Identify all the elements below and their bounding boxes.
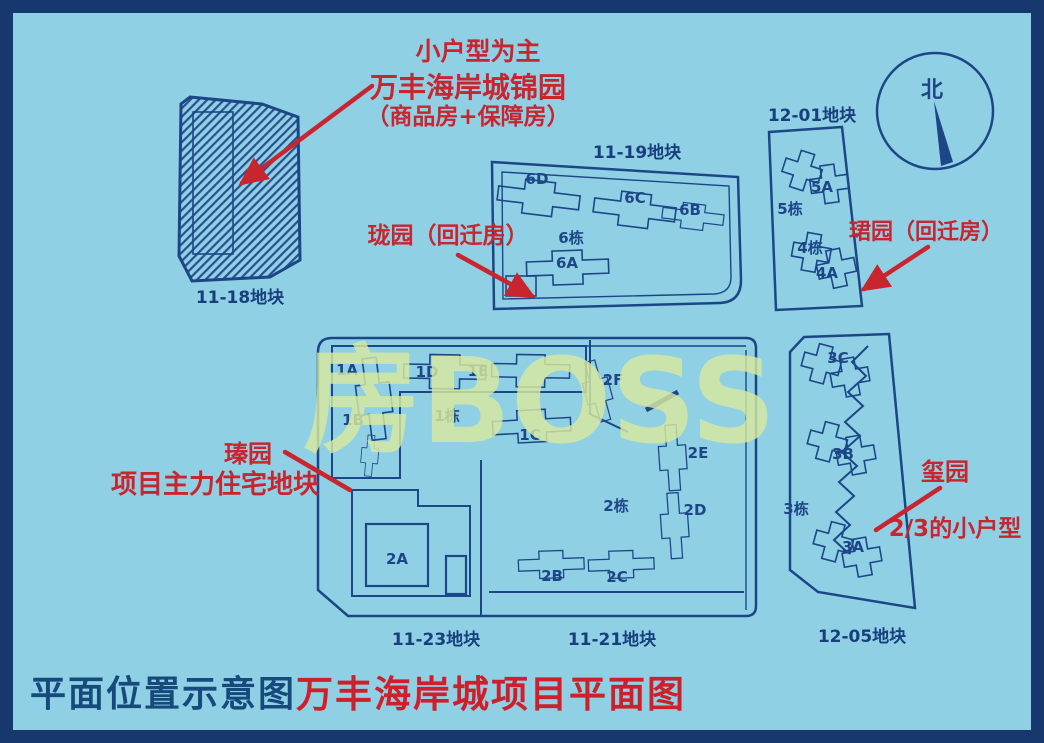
plot-11-21-label: 11-21地块 [568, 629, 657, 650]
watermark-text: 房BOSS [303, 332, 776, 470]
annotation-xiyuan-line1: 玺园 [921, 458, 969, 486]
building-2b-label: 2B [541, 567, 563, 585]
building-6c-label: 6C [624, 189, 645, 207]
building-6d-label: 6D [526, 170, 549, 188]
plot-11-19-label: 11-19地块 [593, 142, 682, 163]
annotation-xiyuan-line2: 2/3的小户型 [889, 515, 1021, 542]
annotation-top-line1: 小户型为主 [415, 37, 540, 66]
building-2dong-label: 2栋 [603, 497, 628, 515]
building-4dong-label: 4栋 [797, 239, 822, 257]
building-6b-label: 6B [679, 201, 701, 219]
site-plan-canvas: 11-18地块 11-19地块 6D 6C 6B 6栋 6A 12-01地块 5… [0, 0, 1044, 743]
footer-left-title: 平面位置示意图 [30, 674, 296, 715]
building-6dong-label: 6栋 [558, 229, 583, 247]
annotation-junyuan: 珺园（回迁房） [849, 219, 1003, 245]
building-3a-label: 3A [842, 538, 864, 556]
building-2c-label: 2C [606, 568, 627, 586]
plot-11-23-label: 11-23地块 [392, 629, 481, 650]
building-2a-label: 2A [386, 550, 408, 568]
building-5dong-label: 5栋 [777, 200, 802, 218]
building-6a-label: 6A [556, 254, 578, 272]
annotation-zhenyuan-line2: 项目主力住宅地块 [111, 469, 319, 500]
footer: 平面位置示意图 万丰海岸城项目平面图 [30, 673, 686, 716]
building-2d-label: 2D [684, 501, 707, 519]
plot-11-18-label: 11-18地块 [196, 287, 285, 308]
annotation-top-line3: （商品房+保障房） [366, 103, 569, 130]
building-4a-label: 4A [816, 264, 838, 282]
plot-12-05-label: 12-05地块 [818, 626, 907, 647]
footer-right-title: 万丰海岸城项目平面图 [296, 673, 686, 716]
plot-12-01-label: 12-01地块 [768, 105, 857, 126]
annotation-longyuan: 珑园（回迁房） [368, 222, 529, 249]
building-5a-label: 5A [811, 178, 833, 196]
site-plan-page: 11-18地块 11-19地块 6D 6C 6B 6栋 6A 12-01地块 5… [0, 0, 1044, 743]
annotation-top-line2: 万丰海岸城锦园 [370, 71, 566, 104]
annotation-zhenyuan-line1: 瑧园 [224, 440, 272, 468]
building-3dong-label: 3栋 [783, 500, 808, 518]
building-3b-label: 3B [832, 445, 854, 463]
compass-north-label: 北 [921, 78, 943, 103]
building-3c-label: 3C [827, 349, 848, 367]
